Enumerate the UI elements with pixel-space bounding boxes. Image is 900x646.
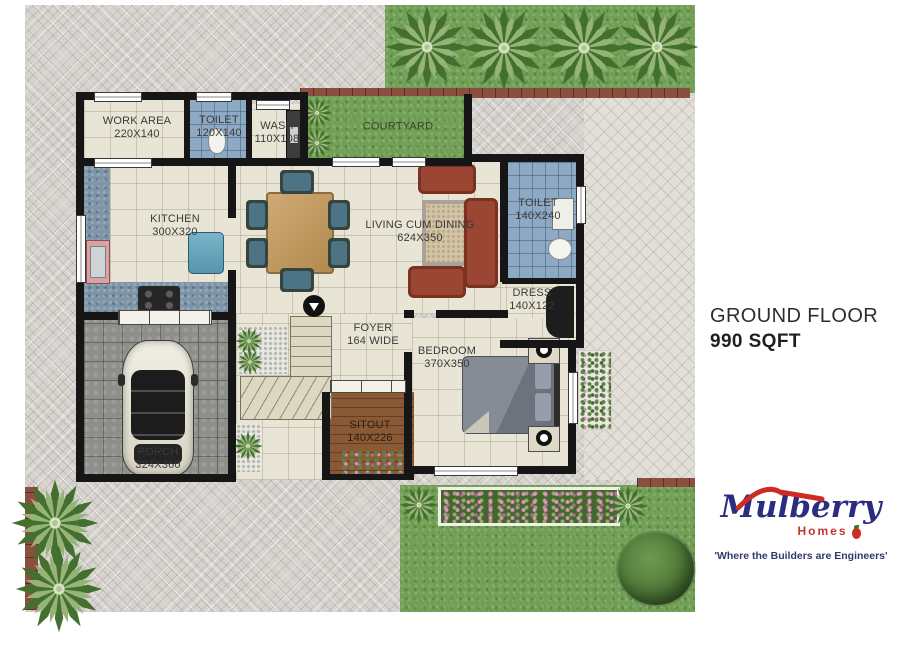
roof-icon bbox=[734, 484, 826, 510]
wall bbox=[404, 310, 414, 318]
page-title: GROUND FLOOR 990 SQFT bbox=[710, 305, 878, 353]
wall bbox=[184, 96, 190, 164]
sitout-step bbox=[330, 380, 406, 393]
room-label-wash: WASH110X108 bbox=[255, 120, 300, 146]
wall bbox=[404, 352, 412, 476]
entry-arrow-icon bbox=[303, 295, 325, 317]
sofa bbox=[418, 164, 476, 194]
room-label-work-area: WORK AREA220X140 bbox=[103, 115, 171, 141]
wall bbox=[500, 160, 508, 282]
garden-tree bbox=[618, 533, 694, 605]
floor-area-value: 990 SQFT bbox=[710, 331, 878, 353]
dining-table bbox=[266, 192, 334, 274]
room-label-toilet2: TOILET140X240 bbox=[515, 197, 560, 223]
sofa bbox=[408, 266, 466, 298]
plant-icon bbox=[232, 430, 264, 462]
palm-shrub-icon bbox=[606, 484, 650, 528]
floor-plan-page: WORK AREA220X140 TOILET120X140 WASH110X1… bbox=[0, 0, 900, 646]
wall bbox=[304, 158, 472, 166]
pillow bbox=[534, 360, 552, 390]
wall bbox=[322, 474, 414, 480]
wall bbox=[576, 154, 584, 348]
window-planter bbox=[578, 350, 612, 430]
wall bbox=[300, 92, 308, 166]
room-label-courtyard: COURTYARD bbox=[363, 121, 433, 134]
palm-tree-icon bbox=[612, 2, 702, 92]
room-label-dress: DRESS140X122 bbox=[509, 287, 554, 313]
porch-steps bbox=[118, 310, 212, 325]
palm-tree-icon bbox=[12, 542, 106, 636]
vent-window bbox=[94, 158, 152, 168]
wall bbox=[246, 96, 252, 162]
flower-bed bbox=[438, 487, 620, 526]
pillow bbox=[534, 392, 552, 422]
dining-chair bbox=[328, 238, 350, 268]
kitchen-sink bbox=[86, 240, 110, 284]
bed-headboard bbox=[554, 356, 560, 432]
dining-chair bbox=[280, 170, 314, 194]
room-label-foyer: FOYER164 WIDE bbox=[347, 322, 399, 348]
wall bbox=[76, 92, 84, 482]
dining-chair bbox=[280, 268, 314, 292]
dining-chair bbox=[328, 200, 350, 230]
brand-sub: Homes bbox=[797, 524, 847, 538]
dining-chair bbox=[246, 238, 268, 268]
wash-basin bbox=[548, 238, 572, 260]
wall bbox=[228, 160, 236, 218]
wall bbox=[322, 392, 330, 480]
window bbox=[196, 92, 232, 102]
dining-chair bbox=[246, 200, 268, 230]
window bbox=[332, 157, 380, 167]
window bbox=[434, 466, 518, 476]
window bbox=[76, 215, 86, 283]
window bbox=[568, 372, 578, 424]
wall bbox=[228, 312, 236, 476]
room-label-kitchen: KITCHEN300X320 bbox=[150, 213, 200, 239]
room-label-bedroom: BEDROOM370X350 bbox=[418, 345, 476, 371]
palm-shrub-icon bbox=[398, 484, 440, 526]
room-label-porch: PORCH324X360 bbox=[135, 446, 180, 472]
window bbox=[256, 100, 290, 110]
window bbox=[392, 157, 426, 167]
plant-icon bbox=[236, 348, 264, 376]
brand-tagline: 'Where the Builders are Engineers' bbox=[712, 550, 890, 562]
window bbox=[94, 92, 142, 102]
wall bbox=[76, 474, 236, 482]
staircase-upper-flight bbox=[290, 316, 332, 378]
wall bbox=[470, 154, 584, 162]
room-label-sitout: SITOUT140X226 bbox=[347, 419, 392, 445]
berry-icon bbox=[852, 528, 861, 539]
window bbox=[576, 186, 586, 224]
wall bbox=[502, 278, 578, 284]
builder-logo: Mulberry Homes 'Where the Builders are E… bbox=[712, 492, 890, 562]
palm-tree-icon bbox=[458, 2, 550, 94]
stove bbox=[138, 286, 180, 313]
room-label-living-dining: LIVING CUM DINING624X350 bbox=[365, 219, 474, 245]
wall bbox=[436, 310, 508, 318]
room-label-toilet1: TOILET120X140 bbox=[196, 114, 241, 140]
lamp-icon bbox=[536, 430, 552, 446]
staircase-lower-flight bbox=[240, 376, 332, 420]
